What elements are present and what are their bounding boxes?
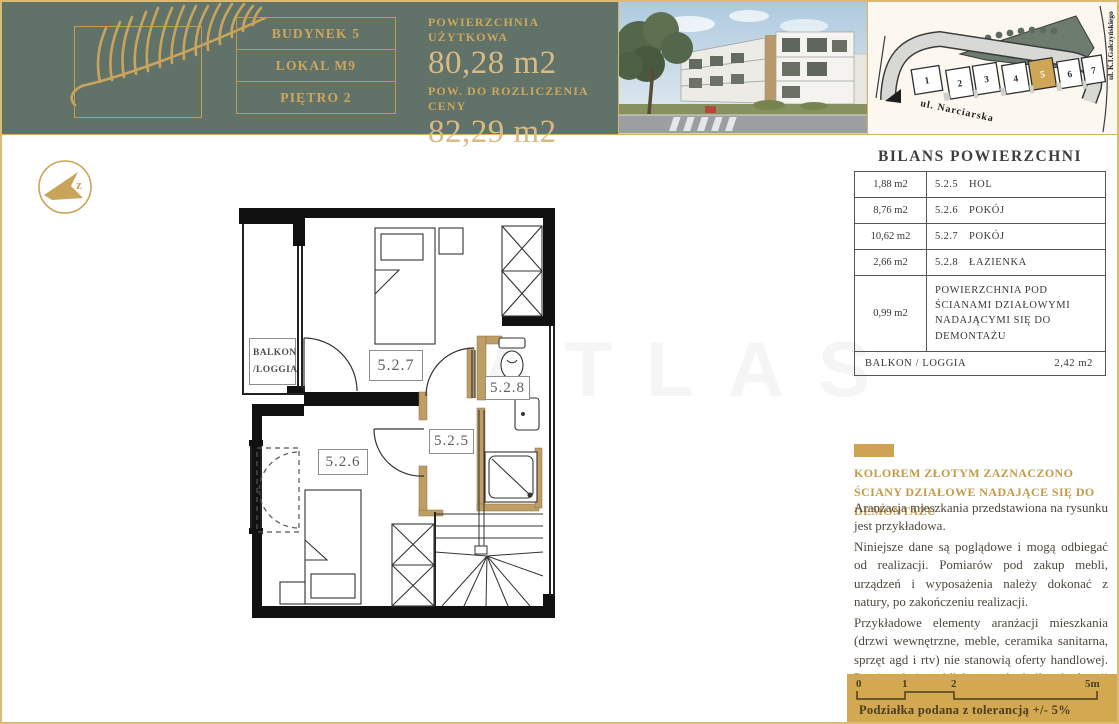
unit-label: LOKAL M9: [236, 49, 396, 82]
table-row: 0,99 m2 POWIERZCHNIA POD ŚCIANAMI DZIAŁO…: [855, 275, 1105, 351]
unit-info-boxes: BUDYNEK 5 LOKAL M9 PIĘTRO 2: [236, 17, 396, 114]
balcony-row-label: BALKON / LOGGIA: [865, 358, 1054, 369]
balcony-label-line1: BALKON: [253, 345, 295, 361]
scale-caption: Podziałka podana z tolerancją +/- 5%: [859, 703, 1071, 718]
site-map: 1 2 3 4 5 6 7 ul. Narciarska ul. K.I.Gał…: [868, 2, 1117, 134]
row-area: 10,62 m2: [855, 224, 927, 249]
row-name: POWIERZCHNIA POD ŚCIANAMI DZIAŁOWYMI NAD…: [935, 283, 1097, 344]
balcony-row-value: 2,42 m2: [1054, 358, 1093, 369]
apartment-card-page: BUDYNEK 5 LOKAL M9 PIĘTRO 2 POWIERZCHNIA…: [0, 0, 1119, 724]
balance-table: 1,88 m2 5.2.5 HOL 8,76 m2 5.2.6 POKÓJ 10…: [854, 171, 1106, 376]
header: BUDYNEK 5 LOKAL M9 PIĘTRO 2 POWIERZCHNIA…: [2, 2, 1117, 135]
building-photo: [618, 2, 868, 134]
scale-tick-1: 1: [902, 678, 908, 690]
building-label: BUDYNEK 5: [236, 17, 396, 50]
table-row: 2,66 m2 5.2.8 ŁAZIENKA: [855, 249, 1105, 275]
billing-area-value: 82,29 m2: [428, 114, 618, 151]
scale-tick-0: 0: [856, 678, 862, 690]
note-paragraph: Aranżacja mieszkania przedstawiona na ry…: [854, 499, 1108, 536]
floor-plan: BALKON /LOGGIA 5.2.7 5.2.8 5.2.5 5.2.6: [239, 208, 559, 620]
row-area: 1,88 m2: [855, 172, 927, 197]
usable-area-label: POWIERZCHNIA UŻYTKOWA: [428, 15, 618, 45]
balance-table-title: BILANS POWIERZCHNI: [854, 148, 1106, 166]
row-code: 5.2.7: [935, 231, 969, 242]
table-row: 1,88 m2 5.2.5 HOL: [855, 172, 1105, 197]
floor-plan-drawing: [239, 208, 559, 620]
table-row: 10,62 m2 5.2.7 POKÓJ: [855, 223, 1105, 249]
gold-wall-legend-swatch: [854, 444, 894, 457]
row-area: 8,76 m2: [855, 198, 927, 223]
room-label-526: 5.2.6: [318, 449, 368, 475]
row-name: HOL: [969, 179, 992, 190]
row-name: POKÓJ: [969, 205, 1005, 216]
room-label-528: 5.2.8: [485, 376, 530, 400]
table-footer-row: BALKON / LOGGIA 2,42 m2: [855, 351, 1105, 375]
note-paragraph: Niniejsze dane są poglądowe i mogą odbie…: [854, 538, 1108, 612]
row-code: 5.2.6: [935, 205, 969, 216]
street-label-galczynskiego: ul. K.I.Gałczyńskiego: [1106, 11, 1115, 80]
building-photo-art: [619, 2, 867, 133]
scale-tick-5m: 5m: [1085, 678, 1100, 690]
balcony-label: BALKON /LOGGIA: [249, 338, 296, 385]
floor-label: PIĘTRO 2: [236, 81, 396, 114]
room-label-527: 5.2.7: [369, 350, 423, 381]
brand-band: BUDYNEK 5 LOKAL M9 PIĘTRO 2 POWIERZCHNIA…: [2, 2, 618, 134]
scale-panel: 0 1 2 5m Podziałka podana z tolerancją +…: [847, 674, 1117, 722]
row-area: 0,99 m2: [855, 276, 927, 351]
area-summary: POWIERZCHNIA UŻYTKOWA 80,28 m2 POW. DO R…: [428, 13, 618, 151]
site-map-art: 1 2 3 4 5 6 7 ul. Narciarska ul. K.I.Gał…: [868, 2, 1117, 134]
developer-logo-frame: [74, 26, 202, 118]
row-code: 5.2.5: [935, 179, 969, 190]
usable-area-value: 80,28 m2: [428, 45, 618, 82]
compass-letter: z: [76, 177, 82, 192]
row-code: 5.2.8: [935, 257, 969, 268]
row-area: 2,66 m2: [855, 250, 927, 275]
billing-area-label: POW. DO ROZLICZENIA CENY: [428, 84, 618, 114]
table-row: 8,76 m2 5.2.6 POKÓJ: [855, 197, 1105, 223]
scale-tick-2: 2: [951, 678, 957, 690]
row-name: ŁAZIENKA: [969, 257, 1027, 268]
row-name: POKÓJ: [969, 231, 1005, 242]
compass: z: [36, 158, 94, 216]
room-label-525: 5.2.5: [429, 429, 474, 454]
balcony-label-line2: /LOGGIA: [253, 362, 295, 378]
